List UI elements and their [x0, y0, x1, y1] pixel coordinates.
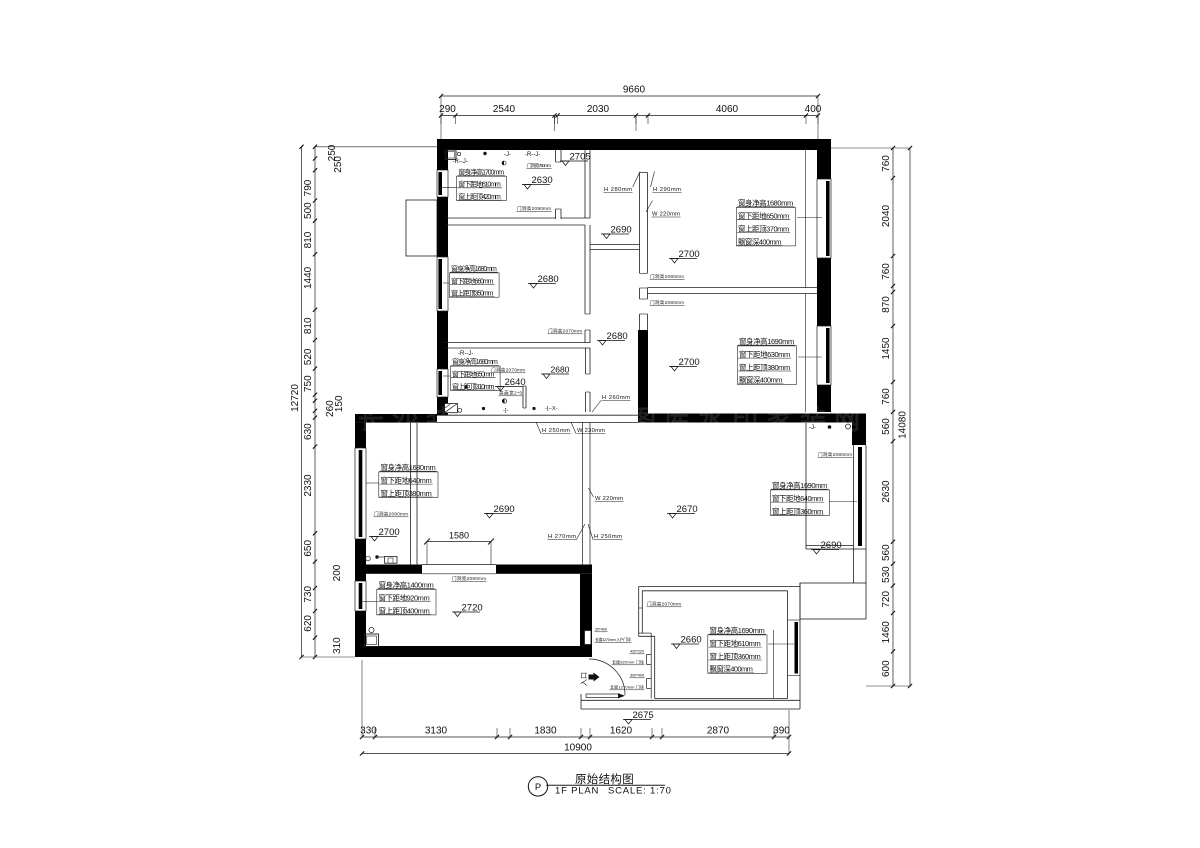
svg-text:门洞高2070mm: 门洞高2070mm [491, 367, 525, 374]
svg-text:窗下距地660mm: 窗下距地660mm [451, 276, 494, 285]
svg-text:入口: 入口 [580, 672, 588, 686]
svg-text:窗身净高1690mm: 窗身净高1690mm [739, 336, 794, 346]
svg-text:H 270mm: H 270mm [548, 534, 576, 540]
svg-text:2700: 2700 [679, 357, 700, 368]
svg-text:2680: 2680 [538, 274, 559, 285]
svg-text:600: 600 [881, 660, 892, 677]
svg-text:窗身净高1700mm: 窗身净高1700mm [458, 167, 504, 176]
svg-text:810: 810 [303, 317, 314, 334]
svg-text:2030: 2030 [587, 104, 610, 115]
svg-text:2700: 2700 [679, 249, 700, 260]
svg-text:760: 760 [881, 388, 892, 405]
svg-text:长沙装饰教训素材图库水印家装网: 长沙装饰教训素材图库水印家装网 [358, 405, 868, 435]
svg-text:2690: 2690 [611, 225, 632, 236]
svg-text:飘窗深400mm: 飘窗深400mm [739, 375, 782, 385]
svg-text:630: 630 [303, 423, 314, 440]
svg-text:窗下距地640mm: 窗下距地640mm [772, 493, 823, 503]
svg-text:330: 330 [360, 726, 377, 737]
svg-text:门洞高2070mm: 门洞高2070mm [548, 328, 582, 335]
svg-text:窗下距地630mm: 窗下距地630mm [739, 349, 790, 359]
svg-text:500: 500 [303, 202, 314, 219]
svg-text:4060: 4060 [716, 104, 739, 115]
svg-text:窗上距顶380mm: 窗上距顶380mm [739, 362, 790, 372]
svg-text:窗上距顶400mm: 窗上距顶400mm [379, 605, 430, 615]
svg-text:门洞高2080mm: 门洞高2080mm [650, 273, 684, 280]
svg-text:3130: 3130 [425, 726, 448, 737]
svg-text:310: 310 [332, 637, 343, 654]
svg-text:2670: 2670 [677, 504, 698, 515]
svg-text:2040: 2040 [881, 204, 892, 227]
svg-text:20*400: 20*400 [595, 627, 608, 632]
svg-text:760: 760 [881, 263, 892, 280]
svg-text:窗下距地650mm: 窗下距地650mm [738, 211, 789, 221]
svg-text:2540: 2540 [493, 104, 516, 115]
svg-text:W 220mm: W 220mm [595, 496, 623, 502]
svg-text:原始结构图: 原始结构图 [575, 772, 634, 786]
svg-text:2690: 2690 [821, 540, 842, 551]
svg-text:520: 520 [303, 348, 314, 365]
svg-text:窗上距顶420mm: 窗上距顶420mm [458, 192, 501, 201]
svg-text:1460: 1460 [881, 621, 892, 644]
svg-text:1440: 1440 [303, 266, 314, 289]
svg-text:2700: 2700 [379, 527, 400, 538]
svg-text:390: 390 [773, 726, 790, 737]
svg-text:1830: 1830 [534, 726, 557, 737]
svg-text:9660: 9660 [623, 85, 646, 96]
svg-text:飘窗深400mm: 飘窗深400mm [738, 236, 781, 246]
svg-text:-R--J-: -R--J- [453, 159, 468, 165]
svg-text:250: 250 [333, 156, 344, 173]
svg-text:H 250mm: H 250mm [594, 534, 622, 540]
svg-text:窗上距顶350mm: 窗上距顶350mm [451, 289, 494, 298]
svg-text:飘窗深400mm: 飘窗深400mm [710, 664, 753, 674]
svg-text:1580: 1580 [449, 531, 469, 541]
svg-text:窗身净高1690mm: 窗身净高1690mm [710, 625, 765, 635]
svg-text:1450: 1450 [881, 337, 892, 360]
svg-text:300*400: 300*400 [630, 673, 645, 678]
svg-text:窗上距顶360mm: 窗上距顶360mm [772, 506, 823, 516]
svg-text:长度820mm 门垛: 长度820mm 门垛 [612, 659, 644, 665]
svg-text:窗身净高1400mm: 窗身净高1400mm [379, 580, 434, 590]
svg-text:门洞高2080mm: 门洞高2080mm [374, 511, 408, 518]
svg-text:窗身净高1680mm: 窗身净高1680mm [738, 198, 793, 208]
svg-text:H 280mm: H 280mm [604, 187, 632, 193]
svg-text:2675: 2675 [633, 710, 654, 721]
svg-text:门洞高2090mm: 门洞高2090mm [517, 205, 551, 212]
svg-text:2680: 2680 [607, 331, 628, 342]
svg-text:12720: 12720 [290, 384, 301, 412]
svg-text:门洞高2080mm: 门洞高2080mm [650, 299, 684, 306]
svg-text:窗身净高1690mm: 窗身净高1690mm [772, 480, 827, 490]
svg-text:750: 750 [303, 375, 314, 392]
svg-text:门洞宽750mm: 门洞宽750mm [527, 162, 551, 169]
svg-text:窗上距顶380mm: 窗上距顶380mm [381, 488, 432, 498]
svg-text:2640: 2640 [505, 377, 526, 388]
svg-text:560: 560 [881, 544, 892, 561]
svg-text:窗上距顶360mm: 窗上距顶360mm [710, 651, 761, 661]
svg-text:窗下距地610mm: 窗下距地610mm [458, 180, 501, 189]
svg-text:730: 730 [303, 586, 314, 603]
svg-text:14080: 14080 [898, 411, 909, 439]
svg-text:门洞高2070mm: 门洞高2070mm [647, 601, 681, 608]
svg-text:1F PLAN: 1F PLAN [555, 786, 599, 797]
svg-text:2705: 2705 [570, 152, 591, 163]
svg-text:窗下距地650mm: 窗下距地650mm [452, 370, 495, 379]
svg-text:P: P [535, 782, 541, 793]
svg-text:1620: 1620 [610, 726, 633, 737]
svg-text:870: 870 [881, 296, 892, 313]
svg-text:高画宽2*0: 高画宽2*0 [499, 390, 522, 397]
svg-text:620: 620 [303, 615, 314, 632]
svg-text:长度1270mm 门垛: 长度1270mm 门垛 [610, 684, 644, 690]
svg-text:窗下距地920mm: 窗下距地920mm [379, 592, 430, 602]
svg-text:窗身净高1680mm: 窗身净高1680mm [451, 264, 497, 273]
svg-text:790: 790 [303, 179, 314, 196]
svg-text:长度1270mm 入户门垛: 长度1270mm 入户门垛 [595, 636, 631, 642]
svg-text:650: 650 [303, 540, 314, 557]
svg-text:2870: 2870 [707, 726, 730, 737]
svg-text:窗身净高1680mm: 窗身净高1680mm [381, 462, 436, 472]
svg-text:560: 560 [881, 418, 892, 435]
svg-text:H 260mm: H 260mm [602, 395, 630, 401]
svg-text:2630: 2630 [881, 480, 892, 503]
svg-text:260: 260 [325, 400, 336, 417]
svg-text:530: 530 [881, 566, 892, 583]
svg-text:200: 200 [332, 564, 343, 581]
svg-text:290: 290 [439, 104, 456, 115]
svg-text:窗上距顶310mm: 窗上距顶310mm [452, 382, 495, 391]
svg-text:720: 720 [881, 591, 892, 608]
svg-text:SCALE: 1:70: SCALE: 1:70 [608, 786, 672, 797]
svg-text:2690: 2690 [494, 504, 515, 515]
svg-text:W 220mm: W 220mm [652, 212, 680, 218]
svg-text:2660: 2660 [681, 635, 702, 646]
svg-text:2630: 2630 [532, 175, 553, 186]
svg-text:10900: 10900 [564, 743, 592, 754]
svg-text:-R--J-: -R--J- [525, 152, 540, 158]
svg-text:2720: 2720 [462, 603, 483, 614]
svg-text:400: 400 [805, 104, 822, 115]
svg-text:窗身净高1680mm: 窗身净高1680mm [452, 357, 498, 366]
svg-text:H 290mm: H 290mm [653, 187, 681, 193]
svg-text:2680: 2680 [551, 365, 570, 375]
svg-text:窗上距顶370mm: 窗上距顶370mm [738, 223, 789, 233]
svg-text:窗下距地610mm: 窗下距地610mm [710, 638, 761, 648]
svg-text:门洞宽2080mm: 门洞宽2080mm [452, 575, 486, 582]
svg-text:760: 760 [881, 155, 892, 172]
svg-text:420*220: 420*220 [630, 649, 645, 654]
svg-text:-J-: -J- [504, 152, 511, 158]
svg-text:2330: 2330 [303, 474, 314, 497]
svg-text:810: 810 [303, 231, 314, 248]
svg-text:-R--J-: -R--J- [458, 351, 473, 357]
svg-text:门洞高2080mm: 门洞高2080mm [818, 451, 852, 458]
svg-text:窗下距地640mm: 窗下距地640mm [381, 475, 432, 485]
